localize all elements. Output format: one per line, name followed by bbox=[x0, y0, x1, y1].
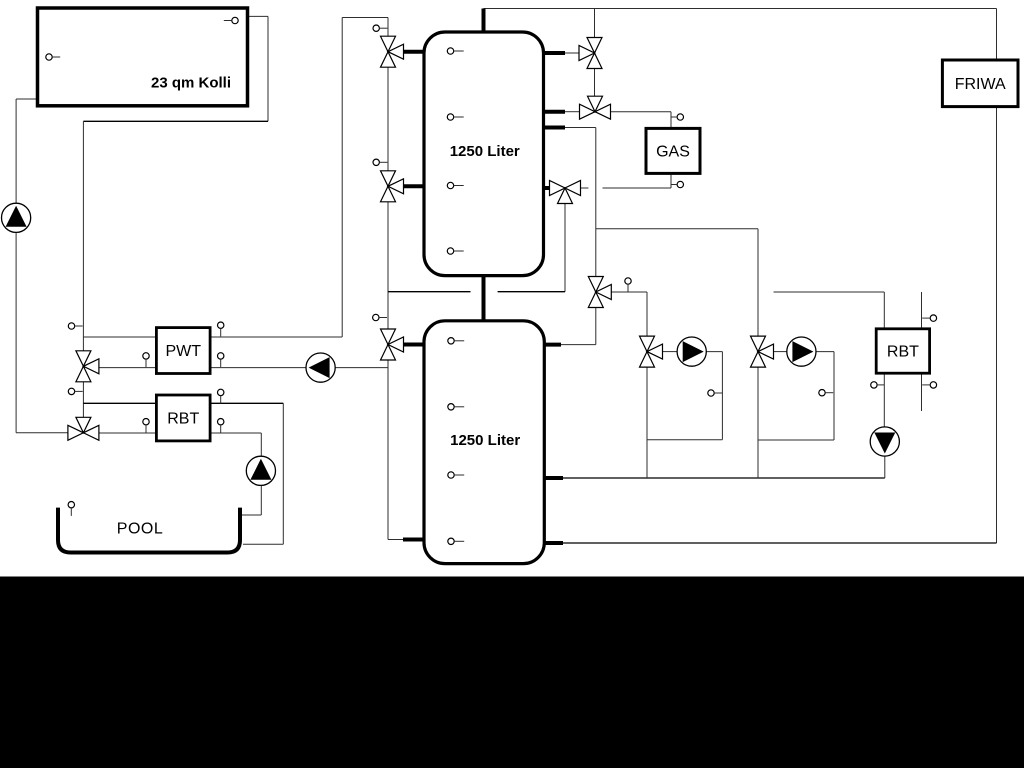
svg-text:RBT: RBT bbox=[887, 344, 919, 361]
svg-text:RBT: RBT bbox=[167, 410, 199, 427]
svg-text:FRIWA: FRIWA bbox=[955, 76, 1006, 93]
svg-text:POOL: POOL bbox=[117, 521, 163, 538]
svg-text:1250 Liter: 1250 Liter bbox=[450, 432, 520, 449]
svg-text:1250 Liter: 1250 Liter bbox=[450, 143, 520, 160]
svg-text:PWT: PWT bbox=[165, 343, 201, 360]
svg-text:23 qm Kolli: 23 qm Kolli bbox=[151, 75, 231, 92]
svg-text:GAS: GAS bbox=[656, 143, 690, 160]
